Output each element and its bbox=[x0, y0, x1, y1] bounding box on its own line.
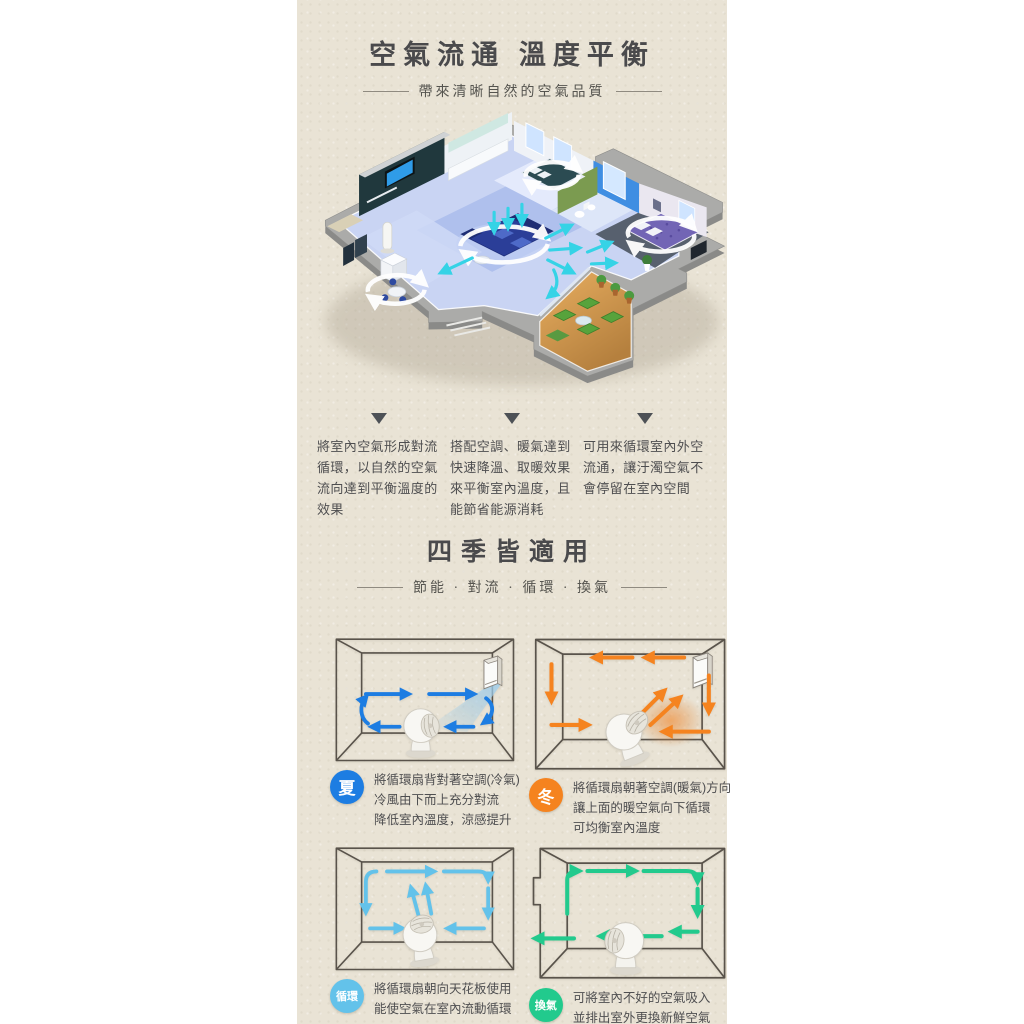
section1-title: 空氣流通 溫度平衡 bbox=[297, 0, 727, 73]
section1-subtitle: 帶來清晰自然的空氣品質 bbox=[297, 81, 727, 101]
season-modes-grid: 夏 將循環扇背對著空調(冷氣) 冷風由下而上充分對流 降低室內溫度，涼感提升 bbox=[297, 635, 727, 1024]
circulate-caption: 循環 將循環扇朝向天花板使用 能使空氣在室內流動循環 bbox=[330, 979, 520, 1024]
caption-line: 讓上面的暖空氣向下循環 bbox=[573, 798, 731, 818]
circulator-fan-icon bbox=[404, 709, 441, 758]
caption-line: 降低室內溫度，涼感提升 bbox=[374, 810, 520, 830]
summer-badge: 夏 bbox=[330, 770, 364, 804]
winter-mode: 冬 將循環扇朝著空調(暖氣)方向 讓上面的暖空氣向下循環 可均衡室內溫度 bbox=[529, 635, 731, 838]
ventilate-caption: 換氣 可將室內不好的空氣吸入 並排出室外更換新鮮空氣 bbox=[529, 988, 731, 1024]
divider-line-left bbox=[357, 587, 403, 588]
feature-point-text: 可用來循環室內外空流通，讓汙濁空氣不會停留在室內空間 bbox=[583, 436, 707, 499]
summer-caption: 夏 將循環扇背對著空調(冷氣) 冷風由下而上充分對流 降低室內溫度，涼感提升 bbox=[330, 770, 520, 830]
circulator-fan-icon bbox=[603, 923, 643, 975]
caption-line: 將循環扇朝著空調(暖氣)方向 bbox=[573, 778, 731, 798]
divider-line-right bbox=[621, 587, 667, 588]
caption-line: 將循環扇背對著空調(冷氣) bbox=[374, 770, 520, 790]
divider-line-right bbox=[616, 91, 662, 92]
caption-line: 將循環扇朝向天花板使用 bbox=[374, 979, 512, 999]
caption-line: 冷風由下而上充分對流 bbox=[374, 790, 520, 810]
feature-points: 將室內空氣形成對流循環，以自然的空氣流向達到平衡溫度的效果 搭配空調、暖氣達到快… bbox=[297, 413, 727, 520]
ventilate-airflow-diagram bbox=[529, 844, 731, 982]
circulate-mode: 循環 將循環扇朝向天花板使用 能使空氣在室內流動循環 bbox=[330, 844, 520, 1024]
divider-line-left bbox=[363, 91, 409, 92]
tall-circulator-fan bbox=[383, 222, 392, 250]
feature-point-3: 可用來循環室內外空流通，讓汙濁空氣不會停留在室內空間 bbox=[583, 413, 707, 520]
apartment-airflow-illustration bbox=[297, 111, 727, 403]
winter-airflow-diagram bbox=[529, 635, 731, 773]
feature-point-2: 搭配空調、暖氣達到快速降溫、取暖效果來平衡室內溫度，且能節省能源消耗 bbox=[450, 413, 574, 520]
plant bbox=[642, 255, 652, 265]
circulator-fan-icon bbox=[400, 914, 442, 970]
section-four-seasons: 四季皆適用 節能 · 對流 · 循環 · 換氣 bbox=[297, 520, 727, 1024]
air-conditioner-icon bbox=[484, 656, 502, 689]
down-triangle-icon bbox=[371, 413, 387, 424]
section2-title: 四季皆適用 bbox=[297, 520, 727, 569]
section-air-circulation: 空氣流通 溫度平衡 帶來清晰自然的空氣品質 bbox=[297, 0, 727, 520]
dining-table bbox=[388, 287, 406, 297]
winter-caption: 冬 將循環扇朝著空調(暖氣)方向 讓上面的暖空氣向下循環 可均衡室內溫度 bbox=[529, 778, 731, 838]
caption-line: 可將室內不好的空氣吸入 bbox=[573, 988, 711, 1008]
circulate-airflow-diagram bbox=[330, 844, 520, 974]
stool bbox=[389, 278, 396, 285]
summer-mode: 夏 將循環扇背對著空調(冷氣) 冷風由下而上充分對流 降低室內溫度，涼感提升 bbox=[330, 635, 520, 838]
caption-line: 能使空氣在室內流動循環 bbox=[374, 999, 512, 1019]
caption-line: 並排出室外更換新鮮空氣 bbox=[573, 1008, 711, 1024]
down-triangle-icon bbox=[637, 413, 653, 424]
section2-subtitle: 節能 · 對流 · 循環 · 換氣 bbox=[297, 577, 727, 597]
down-triangle-icon bbox=[504, 413, 520, 424]
feature-point-text: 將室內空氣形成對流循環，以自然的空氣流向達到平衡溫度的效果 bbox=[317, 436, 441, 520]
ventilate-mode: 換氣 可將室內不好的空氣吸入 並排出室外更換新鮮空氣 bbox=[529, 844, 731, 1024]
feature-point-1: 將室內空氣形成對流循環，以自然的空氣流向達到平衡溫度的效果 bbox=[317, 413, 441, 520]
product-infographic-panel: 空氣流通 溫度平衡 帶來清晰自然的空氣品質 bbox=[297, 0, 727, 1024]
summer-airflow-diagram bbox=[330, 635, 520, 765]
caption-line: 可均衡室內溫度 bbox=[573, 818, 731, 838]
winter-badge: 冬 bbox=[529, 778, 563, 812]
ventilate-badge: 換氣 bbox=[529, 988, 563, 1022]
circulate-badge: 循環 bbox=[330, 979, 364, 1013]
feature-point-text: 搭配空調、暖氣達到快速降溫、取暖效果來平衡室內溫度，且能節省能源消耗 bbox=[450, 436, 574, 520]
